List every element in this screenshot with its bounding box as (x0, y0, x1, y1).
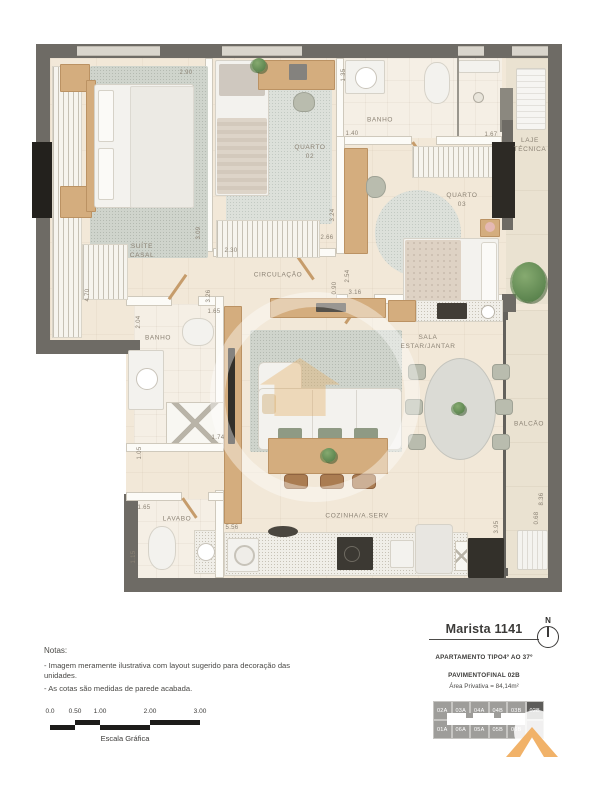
dimension-label: 1.65 (208, 309, 221, 315)
suite-duvet (130, 86, 194, 208)
dimension-label: 0.90 (332, 282, 338, 295)
title-block: Marista 1141 APARTAMENTO TIPO4º AO 37º P… (425, 622, 543, 690)
scale-tick: 3.00 (194, 708, 207, 715)
washer-door (234, 545, 255, 566)
wall-left-lower (124, 494, 138, 592)
scale-segment-1 (50, 725, 75, 730)
title-sub-line: FINAL 02B (486, 672, 520, 679)
compass: N (536, 616, 560, 648)
room-label: QUARTO 03 (446, 192, 477, 210)
suite-pillow-2 (98, 148, 114, 200)
banho-mid-basin (136, 368, 158, 390)
compass-needle-icon (547, 627, 549, 637)
q3-lamp (485, 222, 495, 232)
key-plan-footprint (447, 713, 525, 725)
dimension-label: 2.90 (180, 70, 193, 76)
dimension-label: 3.09 (196, 227, 202, 240)
wall-right (548, 44, 562, 592)
kitchen-upper-cabinet (388, 300, 416, 322)
outside-cutout (0, 352, 126, 592)
kitchen-cabinet-cross (455, 541, 468, 571)
cooktop-upper (437, 303, 467, 319)
window-suite (77, 46, 160, 56)
wall-bottom (124, 578, 562, 592)
title-sub-lines: APARTAMENTO TIPO4º AO 37º PAVIMENTOFINAL… (425, 646, 543, 682)
dimension-label: 3.24 (330, 209, 336, 222)
room-label: LAJE TÉCNICA (514, 137, 547, 155)
banho-top-shower-shelf (458, 60, 500, 73)
scale-segment-4 (150, 720, 200, 725)
scale-tick: 2.00 (144, 708, 157, 715)
q3-chair (366, 176, 386, 198)
note-line: - As cotas são medidas de parede acabada… (44, 684, 296, 694)
room-label: SUÍTE CASAL (130, 243, 154, 261)
dimension-label: 1.05 (137, 447, 143, 460)
scale-segment-2 (75, 720, 100, 725)
key-plan-notch-1 (466, 713, 473, 718)
dimension-label: 1.74 (212, 435, 225, 441)
dimension-label: 5.56 (226, 525, 239, 531)
lavabo-basin (197, 543, 215, 561)
window-banho (458, 46, 484, 56)
key-plan-notch-2 (494, 713, 501, 718)
kitchen-sink (390, 540, 414, 568)
banho-top-basin (355, 67, 377, 89)
title-sub-line: APARTAMENTO TIPO (435, 654, 503, 661)
dimension-label: 1.35 (341, 69, 347, 82)
dimension-label: 3.95 (494, 521, 500, 534)
notes-heading: Notas: (44, 646, 296, 655)
room-label: QUARTO 02 (294, 144, 325, 162)
q3-blanket (405, 240, 461, 306)
dimension-label: 1.67 (485, 132, 498, 138)
room-label: BANHO (367, 117, 393, 126)
scale-tick: 0.50 (69, 708, 82, 715)
dimension-label: 3.16 (349, 290, 362, 296)
lavabo-toilet (148, 526, 176, 570)
dimension-label: 2.54 (345, 270, 351, 283)
room-label: CIRCULAÇÃO (254, 272, 303, 281)
room-label: BANHO (145, 335, 171, 344)
q3-tall-wardrobe (492, 142, 515, 218)
q2-chair (293, 92, 315, 112)
cooktop-burner (344, 546, 360, 562)
wall-lavabo-top-b (208, 492, 224, 501)
wall-sala-west-b (215, 490, 224, 578)
area-line: Área Privativa = 84,14m² (425, 683, 543, 690)
dining-chair-6 (492, 434, 510, 450)
banho-top-drain (473, 92, 484, 103)
laje-plant (512, 262, 546, 302)
wall-nib-q3-a (502, 120, 513, 144)
banho-top-toilet (424, 62, 450, 104)
q3-wardrobe (412, 146, 500, 178)
q2-desk-item (289, 64, 307, 80)
wall-lavabo-top-a (126, 492, 182, 501)
title-rule (429, 639, 539, 640)
laje-ac-unit (516, 68, 546, 130)
wall-nib-balcao (502, 294, 516, 312)
floorplan-canvas: SUÍTE CASALQUARTO 02BANHOQUARTO 03LAJE T… (0, 0, 600, 620)
q2-plant (252, 58, 266, 72)
dimension-label: 0.68 (534, 512, 540, 525)
balcony-ac (517, 530, 548, 570)
dimension-label: 2.66 (321, 235, 334, 241)
q3-pillow (481, 242, 497, 306)
dining-plant (453, 402, 465, 414)
notes-items: - Imagem meramente ilustrativa com layou… (44, 661, 296, 694)
dining-chair-5 (495, 399, 513, 415)
scale-caption: Escala Gráfica (101, 734, 150, 743)
project-name: Marista 1141 (425, 622, 543, 636)
dimension-label: 2.04 (136, 316, 142, 329)
vent-laje (512, 46, 548, 56)
kitchen-dark-cabinet (468, 538, 504, 578)
floorplan-page: SUÍTE CASALQUARTO 02BANHOQUARTO 03LAJE T… (0, 0, 600, 800)
room-label: LAVABO (163, 516, 192, 525)
note-line: - Imagem meramente ilustrativa com layou… (44, 661, 296, 682)
scale-tick: 1.00 (94, 708, 107, 715)
scale-tick: 0.0 (45, 708, 54, 715)
scale-segment-3 (100, 725, 150, 730)
notes-block: Notas: - Imagem meramente ilustrativa co… (44, 646, 296, 694)
room-label: COZINHA/A.SERV (325, 513, 388, 522)
banho-mid-toilet (182, 318, 214, 346)
fridge (415, 524, 453, 574)
dimension-label: 8.36 (539, 493, 545, 506)
dimension-label: 1.65 (138, 505, 151, 511)
room-label: BALCÃO (514, 421, 544, 430)
wall-banho-mid-top-a (126, 296, 172, 306)
dimension-label: 1.40 (346, 131, 359, 137)
wall-q2-bottom-b (318, 248, 336, 257)
dimension-label: 2.30 (225, 248, 238, 254)
dimension-label: 3.26 (206, 290, 212, 303)
suite-pillow-1 (98, 90, 114, 142)
compass-north-label: N (536, 616, 560, 625)
q2-blanket (217, 118, 267, 194)
sink-upper (481, 305, 495, 319)
room-label: SALA ESTAR/JANTAR (401, 334, 456, 352)
dimension-label: 1.15 (131, 551, 137, 564)
dining-chair-4 (492, 364, 510, 380)
dimension-label: 4.70 (85, 289, 91, 302)
q3-desk (344, 148, 368, 254)
wall-step (36, 340, 140, 354)
wall-q3-top-a (336, 136, 412, 145)
banho-top-shower-glass (457, 58, 459, 136)
counter-pan (268, 526, 298, 537)
compass-dial (537, 626, 559, 648)
window-quarto02 (222, 46, 302, 56)
